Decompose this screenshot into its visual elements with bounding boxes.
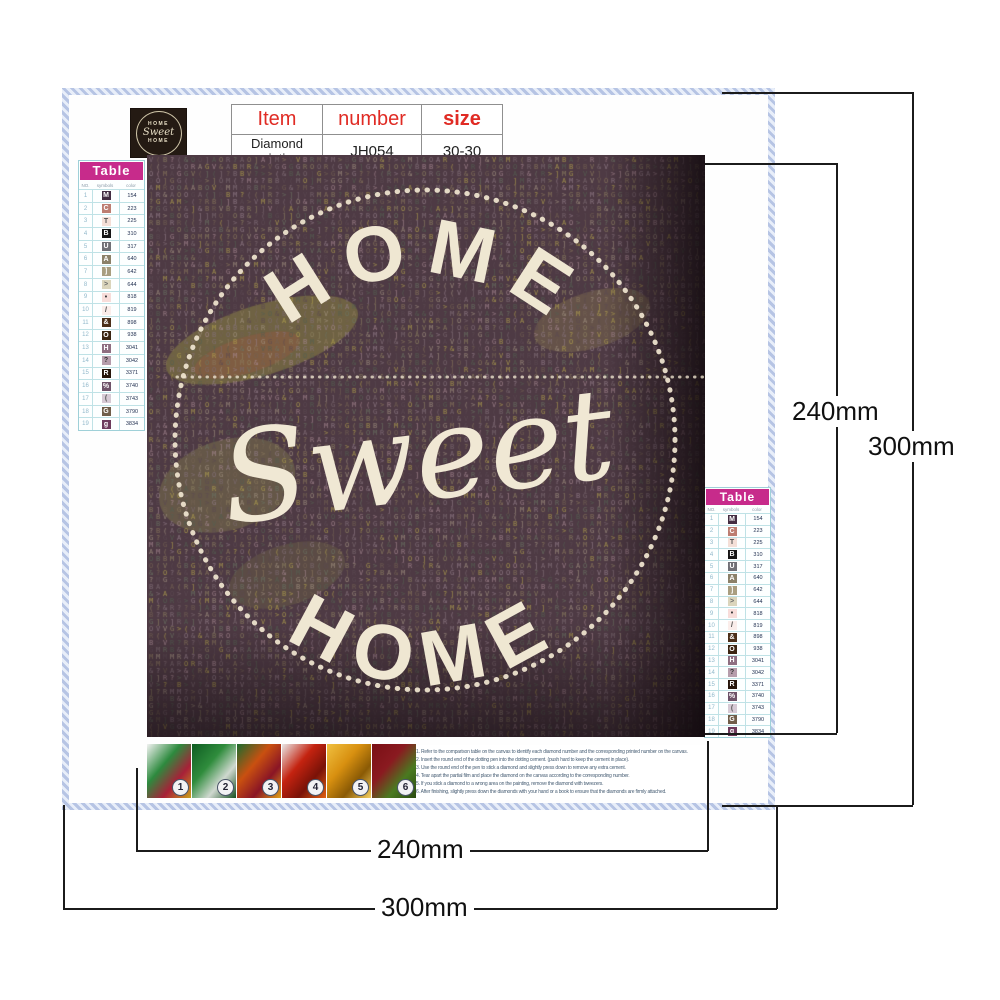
instruction-line: 5. If you stick a diamond to a wrong are… xyxy=(416,780,705,788)
symbol-cell: ] xyxy=(718,585,746,596)
color-table-row: 14 ? 3042 xyxy=(705,666,770,678)
step-thumbnail: 1 xyxy=(147,744,191,798)
color-table-row: 9 • 818 xyxy=(705,607,770,619)
dmc-code: 154 xyxy=(120,193,144,199)
symbol-cell: G xyxy=(718,715,746,726)
dmc-code: 223 xyxy=(120,206,144,212)
symbol-swatch: H xyxy=(102,344,111,353)
instruction-line: 6. After finishing, slightly press down … xyxy=(416,788,705,796)
dmc-code: 223 xyxy=(746,528,770,534)
row-number: 5 xyxy=(705,564,718,570)
symbol-swatch: U xyxy=(102,242,111,251)
row-number: 16 xyxy=(79,383,92,389)
symbol-swatch: • xyxy=(102,293,111,302)
symbol-swatch: ? xyxy=(728,668,737,677)
dim-label-outer-width: 300mm xyxy=(375,892,474,923)
symbol-cell: M xyxy=(718,514,746,525)
dim-inner-height-line xyxy=(836,163,838,733)
design-sweet-text: Sweet xyxy=(213,360,622,554)
step-number-badge: 3 xyxy=(262,779,279,796)
dmc-code: 818 xyxy=(120,294,144,300)
symbol-cell: / xyxy=(92,304,120,316)
dmc-code: 154 xyxy=(746,516,770,522)
dmc-code: 3743 xyxy=(120,396,144,402)
dim-inner-width-right-tick xyxy=(707,741,709,851)
dim-label-inner-height: 240mm xyxy=(786,396,885,427)
dmc-code: 3371 xyxy=(120,370,144,376)
row-number: 4 xyxy=(705,552,718,558)
dmc-code: 3743 xyxy=(746,705,770,711)
symbol-swatch: C xyxy=(728,527,737,536)
dmc-code: 3834 xyxy=(120,421,144,427)
dmc-code: 317 xyxy=(120,244,144,250)
dim-outer-height-top-tick xyxy=(722,92,913,94)
symbol-cell: H xyxy=(92,342,120,354)
dmc-code: 819 xyxy=(120,307,144,313)
symbol-cell: > xyxy=(718,597,746,608)
dmc-code: 310 xyxy=(746,552,770,558)
dmc-code: 3042 xyxy=(746,670,770,676)
color-table-row: 6 A 640 xyxy=(705,572,770,584)
row-number: 13 xyxy=(705,658,718,664)
symbol-swatch: & xyxy=(728,633,737,642)
row-number: 9 xyxy=(79,294,92,300)
instruction-line: 2. Insert the round end of the dotting p… xyxy=(416,756,705,764)
color-table-row: 13 H 3041 xyxy=(705,655,770,667)
step-number-badge: 1 xyxy=(172,779,189,796)
row-number: 10 xyxy=(705,623,718,629)
symbol-cell: G xyxy=(92,406,120,418)
row-number: 7 xyxy=(705,587,718,593)
symbol-swatch: R xyxy=(102,369,111,378)
symbol-swatch: M xyxy=(102,191,111,200)
symbol-cell: % xyxy=(92,380,120,392)
color-table-row: 16 % 3740 xyxy=(705,690,770,702)
step-thumbnail: 3 xyxy=(237,744,281,798)
logo-bottom-text: HOME xyxy=(137,139,181,144)
symbol-swatch: T xyxy=(102,217,111,226)
color-table-row: 10 / 819 xyxy=(79,303,144,316)
instruction-line: 4. Tear apart the partial film and place… xyxy=(416,772,705,780)
dmc-code: 640 xyxy=(120,256,144,262)
color-table-row: 8 > 644 xyxy=(705,596,770,608)
step-thumbnail: 5 xyxy=(327,744,371,798)
symbol-swatch: g xyxy=(728,727,737,736)
symbol-swatch: G xyxy=(102,407,111,416)
symbol-cell: H xyxy=(718,656,746,667)
color-table-columns: NO.symbolscolor xyxy=(705,506,770,513)
symbol-swatch: ( xyxy=(102,394,111,403)
dim-outer-width-right-tick xyxy=(776,805,778,909)
brand-logo: HOME Sweet HOME xyxy=(130,108,187,158)
symbol-swatch: M xyxy=(728,515,737,524)
symbol-cell: ? xyxy=(92,355,120,367)
symbol-cell: A xyxy=(718,573,746,584)
symbol-cell: U xyxy=(92,241,120,253)
dmc-code: 3371 xyxy=(746,682,770,688)
color-table-row: 19 g 3834 xyxy=(79,417,144,430)
symbol-swatch: % xyxy=(728,692,737,701)
color-table-row: 1 M 154 xyxy=(705,513,770,525)
color-table-title: Table xyxy=(706,489,769,505)
symbol-cell: M xyxy=(92,190,120,202)
info-header-item: Item xyxy=(232,105,323,135)
symbol-cell: U xyxy=(718,561,746,572)
symbol-swatch: ? xyxy=(102,356,111,365)
color-table-row: 14 ? 3042 xyxy=(79,354,144,367)
symbol-swatch: > xyxy=(728,597,737,606)
symbol-swatch: / xyxy=(728,621,737,630)
step-number-badge: 6 xyxy=(397,779,414,796)
logo-middle-text: Sweet xyxy=(137,128,181,138)
row-number: 3 xyxy=(705,540,718,546)
row-number: 2 xyxy=(79,206,92,212)
color-legend-table-left: Table NO.symbolscolor 1 M 154 2 C 223 3 … xyxy=(78,160,145,431)
color-table-row: 9 • 818 xyxy=(79,291,144,304)
symbol-cell: T xyxy=(92,215,120,227)
info-header-number: number xyxy=(323,105,422,135)
symbol-swatch: g xyxy=(102,420,111,429)
step-thumbnail: 4 xyxy=(282,744,326,798)
instruction-line: 1. Refer to the comparison table on the … xyxy=(416,748,705,756)
symbol-swatch: U xyxy=(728,562,737,571)
row-number: 3 xyxy=(79,218,92,224)
symbol-swatch: % xyxy=(102,382,111,391)
symbol-cell: R xyxy=(92,368,120,380)
color-table-row: 6 A 640 xyxy=(79,252,144,265)
step-number-badge: 4 xyxy=(307,779,324,796)
color-table-row: 2 C 223 xyxy=(79,202,144,215)
symbol-cell: > xyxy=(92,279,120,291)
dmc-code: 644 xyxy=(746,599,770,605)
color-table-title: Table xyxy=(80,162,143,180)
symbol-cell: B xyxy=(92,228,120,240)
row-number: 6 xyxy=(79,256,92,262)
row-number: 19 xyxy=(79,421,92,427)
design-home-bottom-text: HOME xyxy=(277,576,574,703)
symbol-swatch: A xyxy=(728,574,737,583)
row-number: 8 xyxy=(79,282,92,288)
color-table-row: 7 ] 642 xyxy=(705,584,770,596)
dim-outer-width-left-tick xyxy=(63,805,65,909)
symbol-swatch: O xyxy=(728,645,737,654)
dmc-code: 317 xyxy=(746,564,770,570)
color-table-row: 8 > 644 xyxy=(79,278,144,291)
painting-area: HOME HOME Sweet xyxy=(147,155,705,737)
symbol-swatch: • xyxy=(728,609,737,618)
symbol-cell: / xyxy=(718,620,746,631)
symbol-cell: C xyxy=(718,526,746,537)
symbol-cell: g xyxy=(718,726,746,737)
symbol-cell: B xyxy=(718,549,746,560)
brand-logo-emblem: HOME Sweet HOME xyxy=(136,111,182,156)
row-number: 8 xyxy=(705,599,718,605)
symbol-swatch: ] xyxy=(728,586,737,595)
row-number: 18 xyxy=(705,717,718,723)
symbol-cell: O xyxy=(718,644,746,655)
row-number: 15 xyxy=(79,370,92,376)
symbol-swatch: C xyxy=(102,204,111,213)
symbol-swatch: B xyxy=(728,550,737,559)
symbol-swatch: B xyxy=(102,229,111,238)
symbol-cell: T xyxy=(718,538,746,549)
color-table-row: 12 O 938 xyxy=(79,329,144,342)
color-table-row: 4 B 310 xyxy=(79,227,144,240)
row-number: 7 xyxy=(79,269,92,275)
step-number-badge: 2 xyxy=(217,779,234,796)
step-number-badge: 5 xyxy=(352,779,369,796)
row-number: 1 xyxy=(79,193,92,199)
row-number: 1 xyxy=(705,516,718,522)
dmc-code: 3790 xyxy=(120,409,144,415)
row-number: 12 xyxy=(79,332,92,338)
dim-inner-width-left-tick xyxy=(136,768,138,851)
row-number: 14 xyxy=(79,358,92,364)
dmc-code: 640 xyxy=(746,575,770,581)
dmc-code: 3740 xyxy=(746,693,770,699)
dmc-code: 898 xyxy=(746,634,770,640)
symbol-swatch: O xyxy=(102,331,111,340)
color-table-row: 3 T 225 xyxy=(705,537,770,549)
info-header-row: Item number size xyxy=(232,105,503,135)
row-number: 5 xyxy=(79,244,92,250)
dmc-code: 3790 xyxy=(746,717,770,723)
dmc-code: 938 xyxy=(746,646,770,652)
symbol-swatch: / xyxy=(102,306,111,315)
product-sheet-page: { "header": { "logo": {"top": "HOME", "m… xyxy=(0,0,1000,1000)
symbol-swatch: R xyxy=(728,680,737,689)
symbol-cell: • xyxy=(92,292,120,304)
symbol-cell: • xyxy=(718,608,746,619)
dmc-code: 819 xyxy=(746,623,770,629)
dmc-code: 3740 xyxy=(120,383,144,389)
symbol-cell: ( xyxy=(718,703,746,714)
symbol-cell: R xyxy=(718,679,746,690)
row-number: 18 xyxy=(79,409,92,415)
symbol-swatch: ] xyxy=(102,267,111,276)
row-number: 11 xyxy=(79,320,92,326)
step-thumbnail: 6 xyxy=(372,744,416,798)
symbol-cell: % xyxy=(718,691,746,702)
dmc-code: 644 xyxy=(120,282,144,288)
row-number: 4 xyxy=(79,231,92,237)
dmc-code: 310 xyxy=(120,231,144,237)
symbol-cell: O xyxy=(92,330,120,342)
dmc-code: 898 xyxy=(120,320,144,326)
dmc-code: 225 xyxy=(120,218,144,224)
step-thumbnail: 2 xyxy=(192,744,236,798)
row-number: 6 xyxy=(705,575,718,581)
symbol-cell: & xyxy=(92,317,120,329)
dim-inner-height-top-tick xyxy=(705,163,837,165)
painting-design-svg: HOME HOME Sweet xyxy=(147,155,705,737)
symbol-swatch: A xyxy=(102,255,111,264)
dmc-code: 642 xyxy=(746,587,770,593)
steps-strip: 1 2 3 4 5 6 xyxy=(147,744,417,798)
color-table-row: 11 & 898 xyxy=(79,316,144,329)
row-number: 9 xyxy=(705,611,718,617)
row-number: 14 xyxy=(705,670,718,676)
symbol-swatch: T xyxy=(728,538,737,547)
color-table-row: 12 O 938 xyxy=(705,643,770,655)
symbol-swatch: ( xyxy=(728,704,737,713)
dmc-code: 225 xyxy=(746,540,770,546)
color-table-row: 17 ( 3743 xyxy=(79,392,144,405)
dmc-code: 642 xyxy=(120,269,144,275)
dmc-code: 818 xyxy=(746,611,770,617)
row-number: 15 xyxy=(705,682,718,688)
color-table-row: 19 g 3834 xyxy=(705,725,770,737)
info-header-size: size xyxy=(422,105,503,135)
instructions-block: 1. Refer to the comparison table on the … xyxy=(416,745,705,800)
symbol-cell: C xyxy=(92,203,120,215)
color-table-row: 10 / 819 xyxy=(705,619,770,631)
dim-label-outer-height: 300mm xyxy=(862,431,961,462)
color-table-row: 11 & 898 xyxy=(705,631,770,643)
dmc-code: 3041 xyxy=(120,345,144,351)
symbol-cell: g xyxy=(92,418,120,430)
symbol-swatch: G xyxy=(728,715,737,724)
color-table-row: 5 U 317 xyxy=(79,240,144,253)
row-number: 13 xyxy=(79,345,92,351)
color-table-row: 4 B 310 xyxy=(705,548,770,560)
row-number: 17 xyxy=(79,396,92,402)
color-table-row: 18 G 3790 xyxy=(79,405,144,418)
color-table-row: 18 G 3790 xyxy=(705,714,770,726)
color-table-row: 13 H 3041 xyxy=(79,341,144,354)
row-number: 10 xyxy=(79,307,92,313)
dmc-code: 3041 xyxy=(746,658,770,664)
symbol-swatch: H xyxy=(728,656,737,665)
color-table-row: 2 C 223 xyxy=(705,525,770,537)
dmc-code: 938 xyxy=(120,332,144,338)
symbol-swatch: & xyxy=(102,318,111,327)
symbol-swatch: > xyxy=(102,280,111,289)
dim-label-inner-width: 240mm xyxy=(371,834,470,865)
row-number: 16 xyxy=(705,693,718,699)
symbol-cell: ? xyxy=(718,667,746,678)
color-table-row: 5 U 317 xyxy=(705,560,770,572)
color-table-row: 1 M 154 xyxy=(79,189,144,202)
color-table-row: 15 R 3371 xyxy=(79,367,144,380)
row-number: 17 xyxy=(705,705,718,711)
row-number: 2 xyxy=(705,528,718,534)
dim-outer-height-bottom-tick xyxy=(722,805,913,807)
symbol-cell: ] xyxy=(92,266,120,278)
row-number: 11 xyxy=(705,634,718,640)
color-table-columns: NO.symbolscolor xyxy=(79,181,144,189)
row-number: 12 xyxy=(705,646,718,652)
color-table-row: 7 ] 642 xyxy=(79,265,144,278)
instruction-line: 3. Use the round end of the pen to stick… xyxy=(416,764,705,772)
symbol-cell: ( xyxy=(92,393,120,405)
dim-inner-height-bottom-tick xyxy=(705,733,837,735)
color-table-row: 3 T 225 xyxy=(79,214,144,227)
symbol-cell: A xyxy=(92,253,120,265)
color-table-row: 16 % 3740 xyxy=(79,379,144,392)
color-table-row: 15 R 3371 xyxy=(705,678,770,690)
color-table-row: 17 ( 3743 xyxy=(705,702,770,714)
dmc-code: 3042 xyxy=(120,358,144,364)
color-legend-table-right: Table NO.symbolscolor 1 M 154 2 C 223 3 … xyxy=(704,487,771,738)
symbol-cell: & xyxy=(718,632,746,643)
